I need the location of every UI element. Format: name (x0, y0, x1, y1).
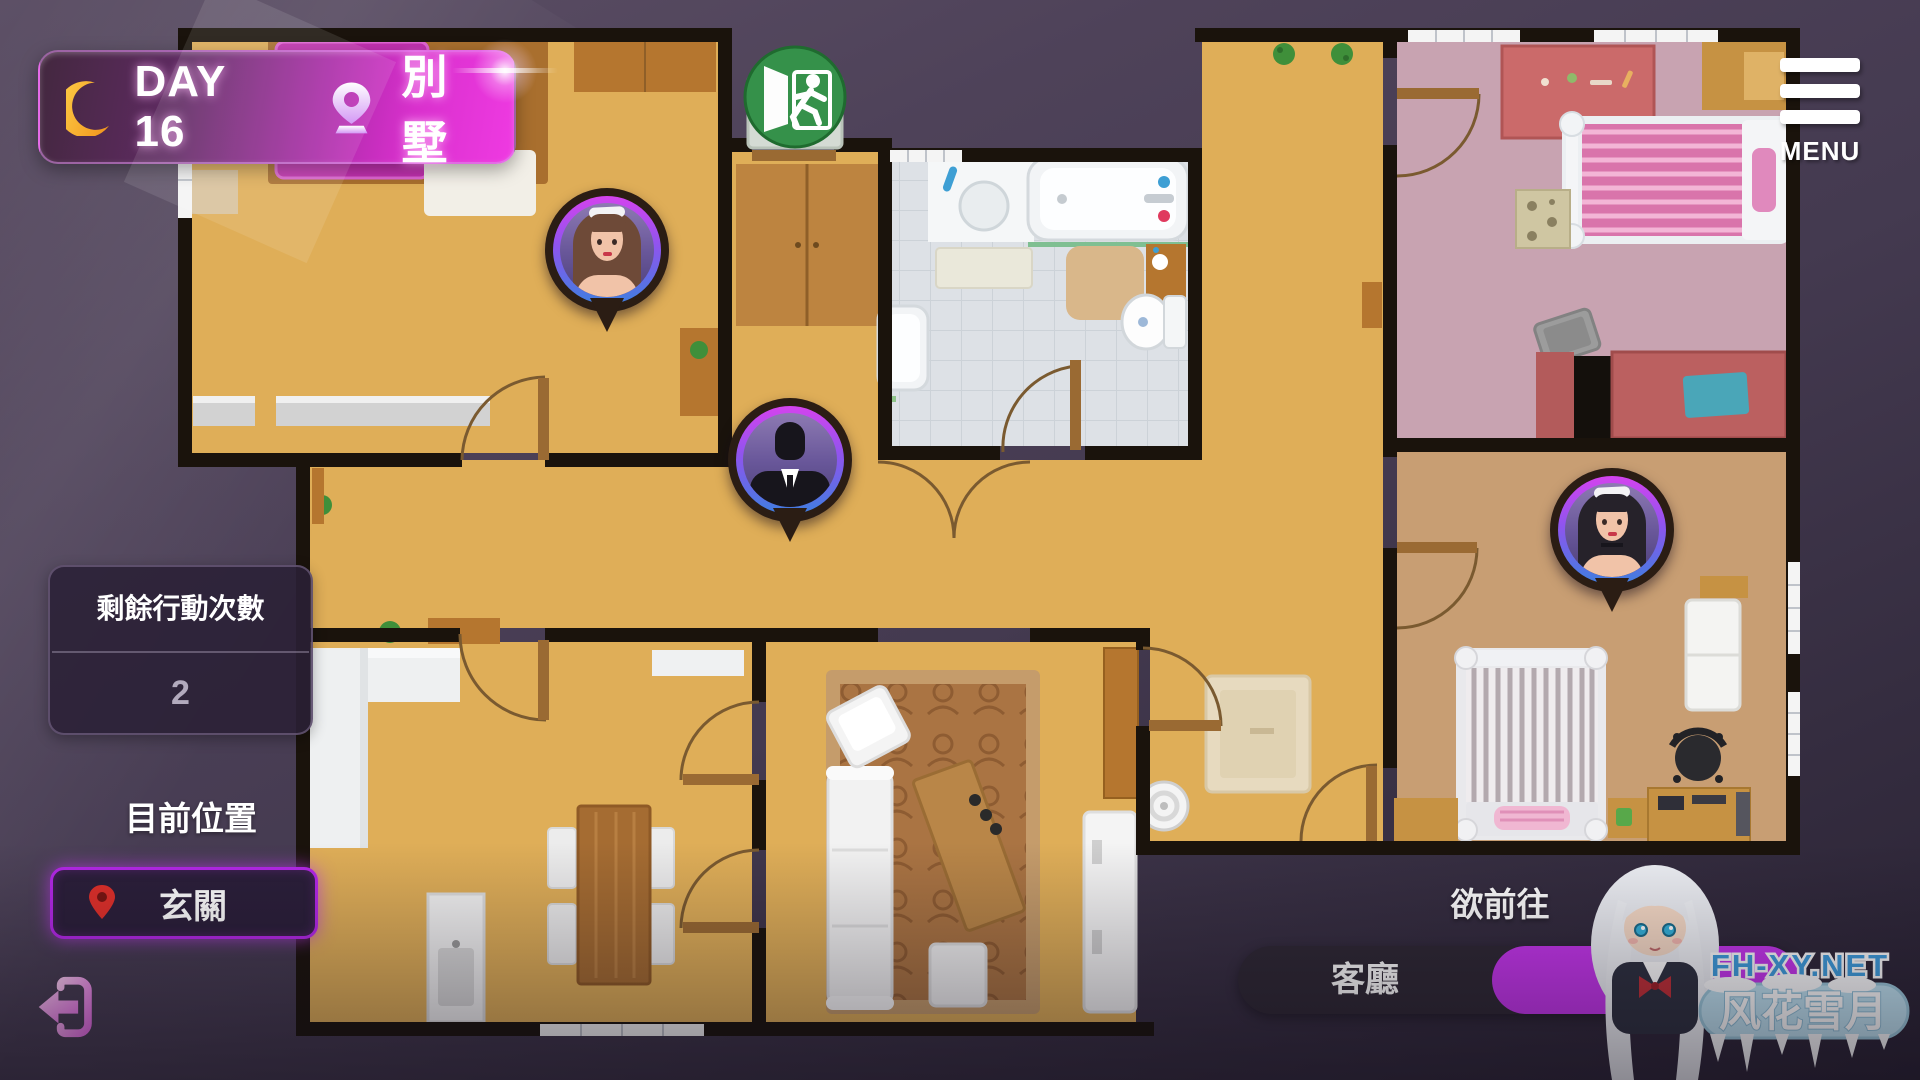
day-counter: DAY 16 (135, 57, 281, 157)
current-map-name: 別墅 (402, 41, 489, 173)
remaining-actions-panel: 剩餘行動次數 2 (48, 565, 313, 735)
menu-label: MENU (1778, 136, 1862, 167)
moon-icon (66, 78, 121, 136)
day-location-badge: DAY 16 別墅 (38, 50, 516, 164)
remaining-actions-value: 2 (50, 653, 311, 733)
current-location-title: 目前位置 (60, 792, 322, 840)
remaining-actions-title: 剩餘行動次數 (50, 567, 311, 651)
menu-button[interactable]: MENU (1778, 58, 1862, 167)
hamburger-menu-icon (1778, 58, 1862, 124)
avatar-portrait-silhouette (743, 413, 837, 507)
game-screen: DAY 16 別墅 MENU 剩餘行動次數 2 目前位置 玄關 (0, 0, 1920, 1080)
destination-selector[interactable]: 客廳 (1238, 946, 1800, 1014)
avatar-ring (736, 406, 844, 514)
emergency-exit-sign-icon[interactable] (745, 47, 845, 148)
exit-button[interactable] (30, 972, 100, 1042)
location-pin-icon (328, 79, 375, 135)
avatar-portrait-brunette (560, 203, 654, 297)
destination-value: 客廳 (1238, 946, 1492, 1014)
destination-title: 欲前往 (1380, 878, 1620, 926)
current-location-value: 玄關 (117, 879, 269, 928)
furniture-bedroom-pink (1502, 42, 1790, 438)
avatar-pin-girl-brunette[interactable] (545, 188, 669, 312)
map-pin-red-icon (87, 884, 117, 922)
exit-door-arrow-icon (30, 972, 100, 1042)
destination-go-segment[interactable] (1492, 946, 1800, 1014)
avatar-pin-player-silhouette[interactable] (728, 398, 852, 522)
avatar-ring (553, 196, 661, 304)
current-location-button[interactable]: 玄關 (50, 867, 318, 939)
avatar-ring (1558, 476, 1666, 584)
avatar-pin-girl-black-hair[interactable] (1550, 468, 1674, 592)
furniture-hall (736, 164, 878, 326)
avatar-portrait-black-hair (1565, 483, 1659, 577)
